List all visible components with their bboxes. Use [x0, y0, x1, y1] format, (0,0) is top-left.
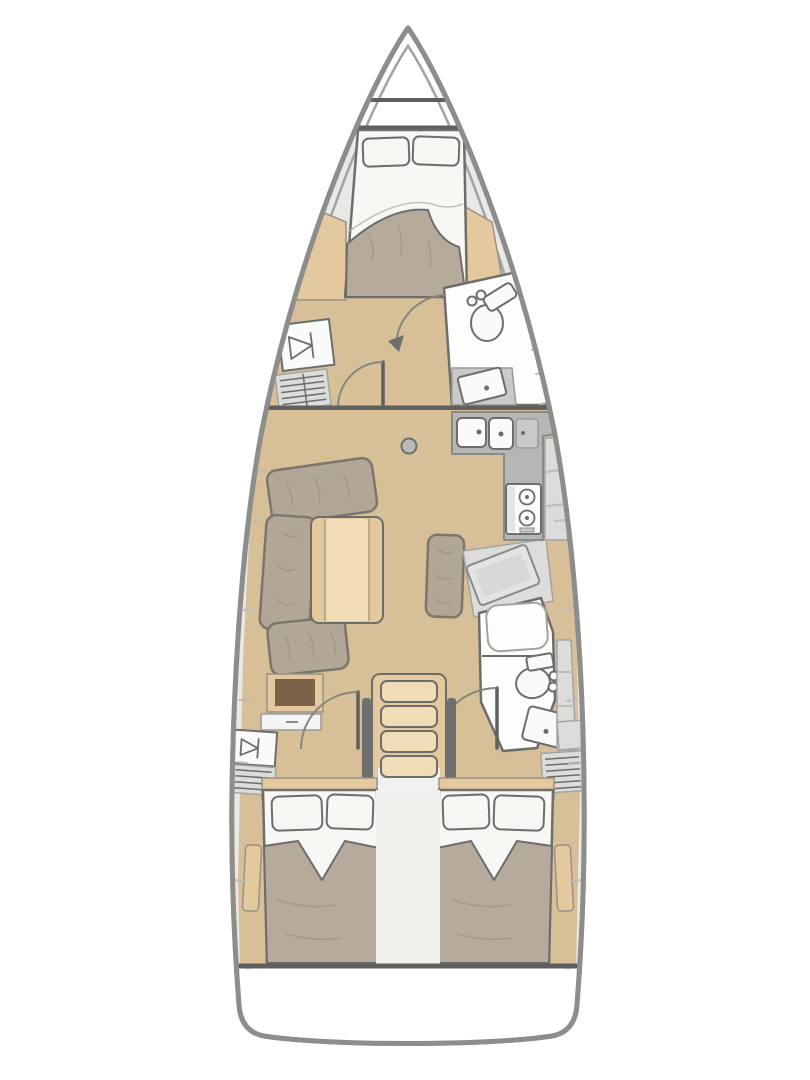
aft-port-pillow-right	[326, 794, 373, 830]
handrail-port	[362, 698, 371, 790]
handrail-starboard	[447, 698, 456, 790]
step-tread	[381, 756, 437, 777]
faucet-dot	[499, 432, 504, 437]
sofa-side-cushion	[259, 514, 317, 631]
engine-compartment-strip	[376, 790, 440, 966]
floor-plan-svg	[0, 0, 810, 1080]
step-tread	[381, 681, 437, 702]
saloon-table	[311, 517, 383, 623]
galley-sink-left	[457, 418, 486, 447]
aft-stbd-pillow-right	[493, 795, 544, 831]
aft-stbd-pillow-left	[442, 794, 489, 830]
forward-pillow-right	[413, 136, 460, 166]
yacht-floor-plan	[0, 0, 810, 1080]
galley-side-counter	[516, 419, 538, 448]
faucet-dot	[477, 430, 482, 435]
mast-post	[402, 439, 417, 454]
forward-louvered-locker	[275, 369, 331, 411]
step-tread	[381, 731, 437, 752]
forward-toilet-bowl	[471, 305, 503, 341]
toilet-knob	[549, 683, 558, 692]
step-tread	[381, 706, 437, 727]
forward-pillow-left	[363, 137, 410, 167]
two-burner-stove	[506, 484, 541, 534]
toilet-hinge	[477, 291, 486, 300]
aft-hanging-locker-port	[231, 730, 277, 767]
shower-pan	[485, 602, 548, 652]
counter-dot	[521, 431, 525, 435]
berth-side-shelf	[554, 845, 573, 912]
ottoman-bench	[426, 534, 465, 617]
sofa-end-cushion	[266, 616, 349, 676]
storage-cabinet	[267, 674, 323, 712]
aft-port-pillow-left	[271, 795, 322, 831]
berth-side-shelf	[242, 845, 261, 912]
toilet-hinge	[468, 297, 477, 306]
